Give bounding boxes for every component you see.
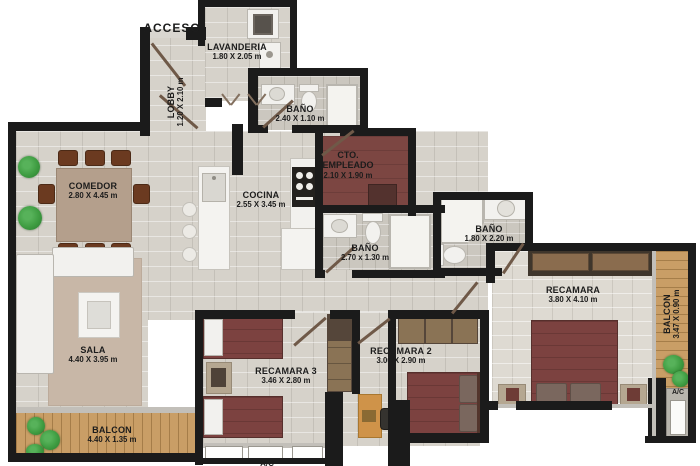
ac-label: A/C <box>672 389 684 396</box>
label-cto-empleado: CTO. EMPLEADO 2.10 X 1.90 m <box>320 151 376 181</box>
sink-bowl <box>269 87 285 101</box>
wall-segment <box>516 401 612 410</box>
room-name: ACCESO <box>143 21 200 35</box>
dining-chair <box>111 150 131 166</box>
closet-rod <box>592 253 649 271</box>
wall-segment <box>198 0 297 7</box>
wall-segment <box>205 98 222 107</box>
wall-segment <box>195 310 295 319</box>
wall-segment <box>255 68 368 76</box>
room-dims: 3.80 X 4.10 m <box>546 295 600 305</box>
wall-segment <box>645 436 696 443</box>
stove-burner <box>306 172 313 179</box>
wall-segment <box>486 401 498 410</box>
room-dims: 1.80 X 2.20 m <box>465 234 514 244</box>
shower <box>389 214 431 269</box>
dining-chair <box>58 150 78 166</box>
plant <box>18 206 42 230</box>
window-sill <box>16 407 200 413</box>
closet <box>398 317 478 344</box>
employee-bed <box>368 184 397 206</box>
toilet-bowl <box>365 221 381 244</box>
room-name: BALCON <box>662 290 672 339</box>
wall-segment <box>390 433 482 443</box>
stove-knobs <box>296 197 313 200</box>
wall-segment <box>315 270 325 278</box>
ac-enclosure <box>648 378 666 442</box>
room-name: LOBBY <box>166 78 176 127</box>
room-dims: 2.10 X 1.90 m <box>320 171 376 181</box>
wall-segment <box>433 192 441 278</box>
wall-segment <box>8 453 200 462</box>
wall-segment <box>392 310 482 319</box>
wall-segment <box>8 122 148 131</box>
wall-segment <box>360 68 368 133</box>
dining-chair <box>38 184 55 204</box>
sink-bowl <box>497 200 515 217</box>
shower <box>326 84 358 129</box>
room-dims: 2.40 X 1.10 m <box>276 114 325 124</box>
wall-segment <box>480 310 489 443</box>
bar-stool <box>182 202 197 217</box>
label-recamara-principal: RECAMARA 3.80 X 4.10 m <box>546 285 600 305</box>
room-name: BAÑO <box>276 104 325 114</box>
label-sala: SALA 4.40 X 3.95 m <box>69 345 118 365</box>
floor-plan: ACCESO LOBBY 1.20 X 2.10 m LAVANDERIA 1.… <box>0 0 700 466</box>
room-name: BAÑO <box>465 224 514 234</box>
fridge <box>281 228 317 270</box>
wall-segment <box>290 0 297 72</box>
wall-segment <box>352 270 445 278</box>
balcony-divider <box>652 251 656 436</box>
room-dims: 1.80 X 2.05 m <box>207 52 267 62</box>
wall-segment <box>8 122 16 462</box>
label-lavanderia: LAVANDERIA 1.80 X 2.05 m <box>207 42 267 62</box>
pillow <box>204 319 223 356</box>
stove-burner <box>296 172 303 179</box>
wall-segment <box>433 192 533 200</box>
room-dims: 2.80 X 4.45 m <box>69 191 118 201</box>
bar-stool <box>182 247 197 262</box>
label-ac-recamara3: A/C <box>260 459 274 466</box>
stove-burner <box>296 183 303 190</box>
room-name: COCINA <box>237 190 286 200</box>
label-balcon-sala: BALCON 4.40 X 1.35 m <box>88 425 137 445</box>
desk-decor <box>362 410 376 422</box>
plant <box>18 156 40 178</box>
label-balcon-recamara: BALCON 3.47 X 0.90 m <box>662 290 682 339</box>
stove-burner <box>306 183 313 190</box>
dining-chair <box>85 150 105 166</box>
label-comedor: COMEDOR 2.80 X 4.45 m <box>69 181 118 201</box>
label-lobby: LOBBY 1.20 X 2.10 m <box>166 78 186 127</box>
label-ac-recamara: A/C <box>672 389 684 396</box>
wall-segment <box>688 243 696 443</box>
coffee-table-top <box>87 301 111 329</box>
laundry-sink-drain <box>266 51 273 58</box>
room-name: RECAMARA 3 <box>255 366 317 376</box>
room-dims: 3.00 X 2.90 m <box>370 356 432 366</box>
room-dims: 1.20 X 2.10 m <box>176 78 186 127</box>
room-dims: 2.70 x 1.30 m <box>341 253 389 263</box>
bar-stool <box>182 224 197 239</box>
wall-segment <box>315 205 445 213</box>
ac-unit <box>670 400 686 435</box>
pillow <box>459 404 478 432</box>
sofa <box>16 254 54 374</box>
pillow <box>204 399 223 435</box>
nightstand-decor <box>211 368 226 387</box>
faucet <box>212 176 216 180</box>
nightstand-decor <box>506 388 519 401</box>
dining-table <box>56 168 132 242</box>
wall-segment <box>195 310 203 445</box>
room-name: RECAMARA <box>546 285 600 295</box>
wall-segment <box>140 27 150 136</box>
room-dims: 2.55 X 3.45 m <box>237 200 286 210</box>
closet <box>327 314 352 392</box>
label-recamara2: RECAMARA 2 3.00 X 2.90 m <box>370 346 432 366</box>
sofa <box>52 247 134 277</box>
wall-segment <box>408 128 416 216</box>
toilet-bowl <box>443 246 466 264</box>
label-cocina: COCINA 2.55 X 3.45 m <box>237 190 286 210</box>
wall-segment <box>325 392 343 466</box>
room-dims: 3.46 X 2.80 m <box>255 376 317 386</box>
label-bano-top: BAÑO 2.40 X 1.10 m <box>276 104 325 124</box>
closet-rod <box>532 253 589 271</box>
label-bano-medio: BAÑO 2.70 x 1.30 m <box>341 243 389 263</box>
pillow <box>459 375 478 403</box>
room-name: LAVANDERIA <box>207 42 267 52</box>
sink-bowl <box>331 219 348 233</box>
wall-segment <box>232 124 243 175</box>
room-name: SALA <box>69 345 118 355</box>
label-acceso: ACCESO <box>143 21 200 35</box>
washer-door <box>253 14 273 35</box>
room-name: CTO. EMPLEADO <box>320 151 376 171</box>
room-name: BALCON <box>88 425 137 435</box>
label-bano-principal: BAÑO 1.80 X 2.20 m <box>465 224 514 244</box>
room-name: RECAMARA 2 <box>370 346 432 356</box>
room-dims: 4.40 X 3.95 m <box>69 355 118 365</box>
dining-chair <box>133 184 150 204</box>
ac-label: A/C <box>260 459 274 466</box>
room-dims: 3.47 X 0.90 m <box>672 290 682 339</box>
nightstand-decor <box>627 388 640 401</box>
plant <box>672 371 689 387</box>
room-dims: 4.40 X 1.35 m <box>88 435 137 445</box>
wall-segment <box>486 243 495 283</box>
room-name: COMEDOR <box>69 181 118 191</box>
label-recamara3: RECAMARA 3 3.46 X 2.80 m <box>255 366 317 386</box>
room-name: BAÑO <box>341 243 389 253</box>
wall-segment <box>352 310 360 394</box>
wall-segment <box>315 205 323 277</box>
